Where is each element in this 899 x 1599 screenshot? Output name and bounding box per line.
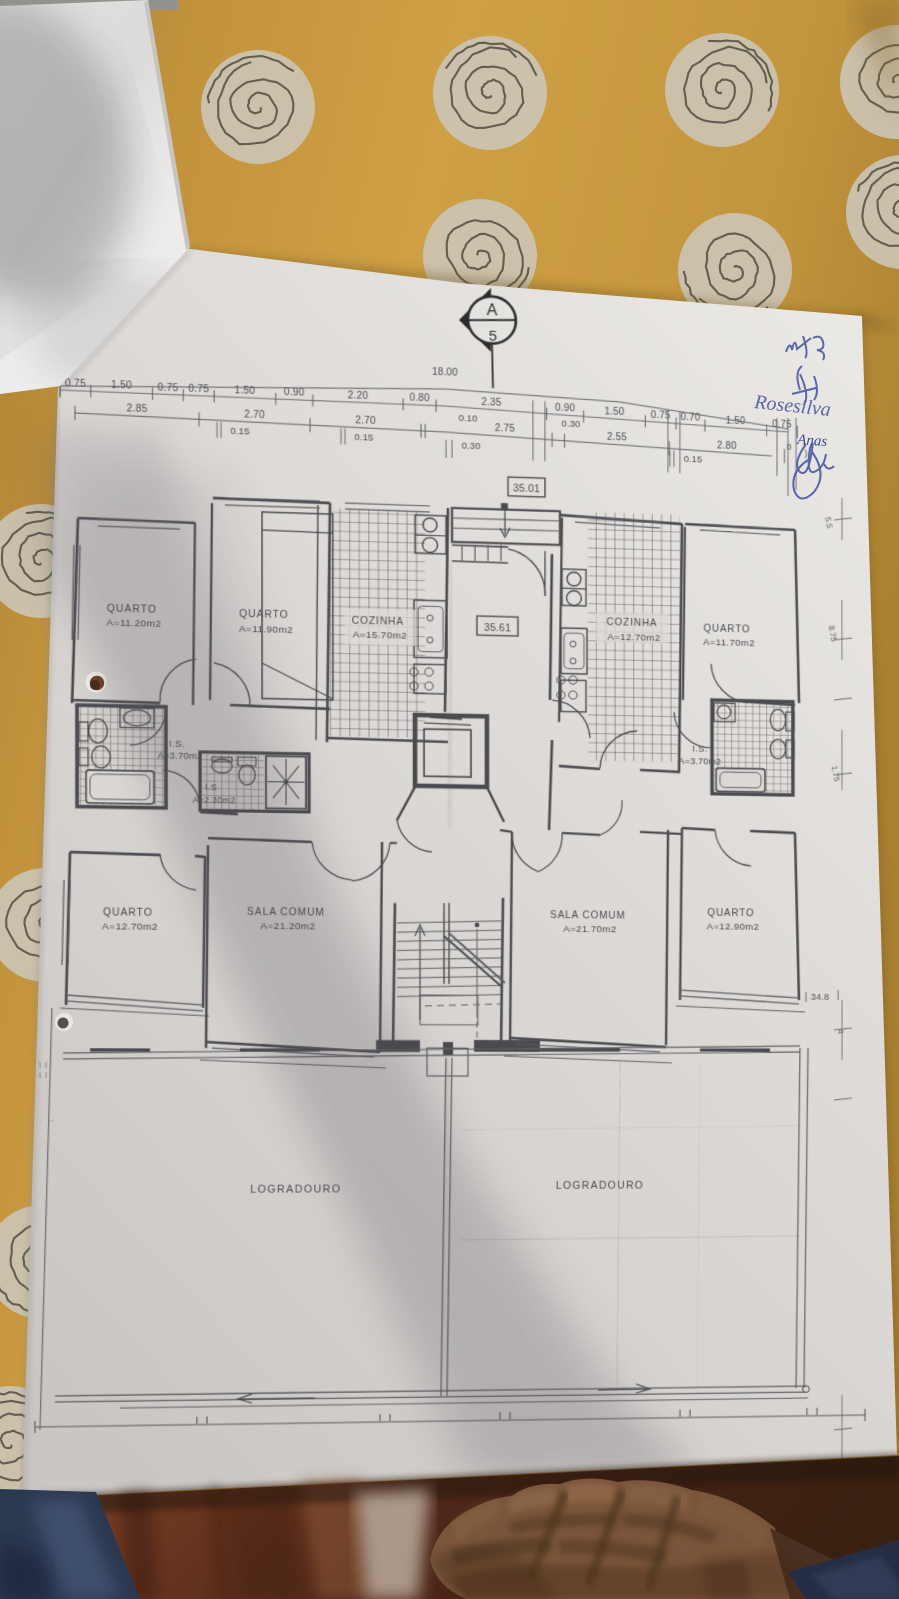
svg-text:Rosesilva: Rosesilva — [752, 391, 832, 421]
svg-text:Anas: Anas — [796, 432, 828, 450]
